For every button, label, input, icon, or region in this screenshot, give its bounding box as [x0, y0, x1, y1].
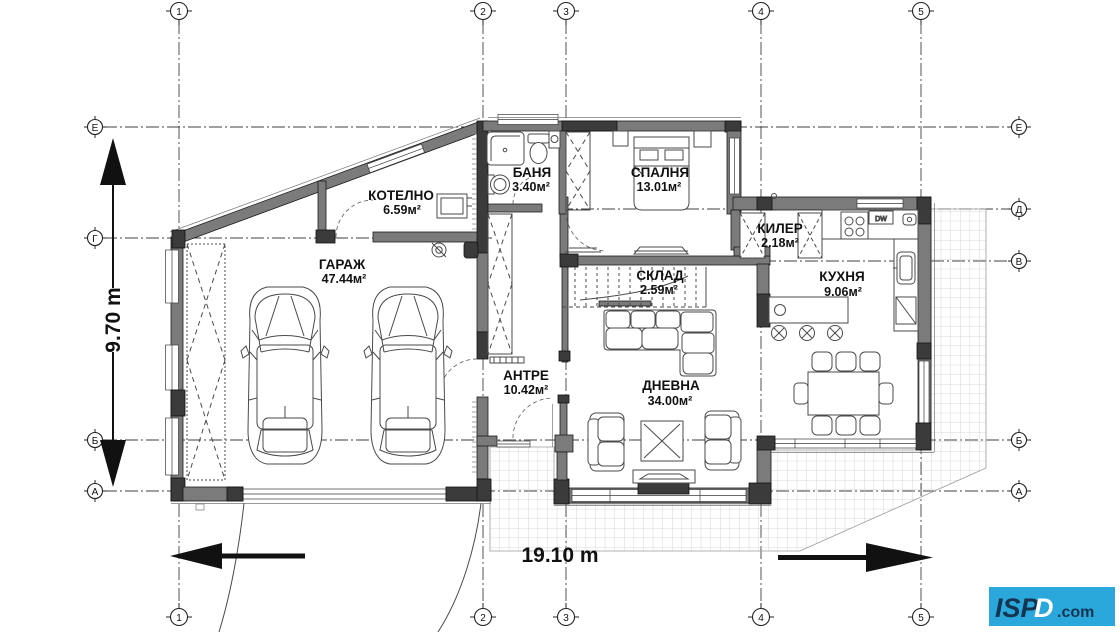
- svg-text:2.18м²: 2.18м²: [761, 236, 799, 250]
- svg-text:СПАЛНЯ: СПАЛНЯ: [631, 165, 689, 180]
- svg-text:19.10 m: 19.10 m: [521, 544, 598, 567]
- svg-text:5: 5: [918, 7, 924, 18]
- svg-text:.com: .com: [1057, 604, 1094, 621]
- svg-text:1: 1: [176, 613, 182, 624]
- svg-text:34.00м²: 34.00м²: [648, 394, 693, 408]
- svg-text:Д: Д: [1016, 205, 1023, 216]
- svg-text:3: 3: [563, 7, 569, 18]
- svg-text:Г: Г: [92, 234, 98, 245]
- svg-text:СКЛАД: СКЛАД: [636, 268, 684, 283]
- svg-text:Е: Е: [1016, 123, 1023, 134]
- svg-text:3.40м²: 3.40м²: [512, 180, 550, 194]
- svg-text:ГАРАЖ: ГАРАЖ: [319, 257, 366, 272]
- svg-text:1: 1: [176, 7, 182, 18]
- svg-text:А: А: [1016, 487, 1023, 498]
- svg-text:13.01м²: 13.01м²: [637, 180, 682, 194]
- svg-text:Б: Б: [1016, 436, 1023, 447]
- svg-text:9.70 m: 9.70 m: [102, 287, 125, 352]
- svg-text:ДНЕВНА: ДНЕВНА: [642, 378, 700, 393]
- svg-text:АНТРЕ: АНТРЕ: [503, 368, 549, 383]
- svg-text:ISP: ISP: [995, 593, 1040, 623]
- svg-text:4: 4: [758, 7, 764, 18]
- svg-text:КОТЕЛНО: КОТЕЛНО: [368, 188, 434, 203]
- svg-text:6.59м²: 6.59м²: [383, 203, 421, 217]
- svg-text:А: А: [92, 487, 99, 498]
- svg-text:5: 5: [918, 613, 924, 624]
- svg-text:КУХНЯ: КУХНЯ: [819, 269, 864, 284]
- svg-text:КИЛЕР: КИЛЕР: [757, 221, 802, 236]
- svg-text:Б: Б: [92, 436, 99, 447]
- svg-text:47.44м²: 47.44м²: [322, 272, 367, 286]
- svg-text:9.06м²: 9.06м²: [824, 285, 862, 299]
- svg-text:В: В: [1016, 257, 1023, 268]
- svg-text:2: 2: [480, 613, 486, 624]
- svg-text:4: 4: [758, 613, 764, 624]
- svg-text:2: 2: [480, 7, 486, 18]
- svg-text:Е: Е: [92, 123, 99, 134]
- svg-text:БАНЯ: БАНЯ: [513, 165, 551, 180]
- svg-text:10.42м²: 10.42м²: [504, 383, 549, 397]
- svg-text:DW: DW: [875, 216, 887, 223]
- svg-text:D: D: [1034, 593, 1054, 623]
- svg-text:2.59м²: 2.59м²: [640, 283, 678, 297]
- svg-text:3: 3: [563, 613, 569, 624]
